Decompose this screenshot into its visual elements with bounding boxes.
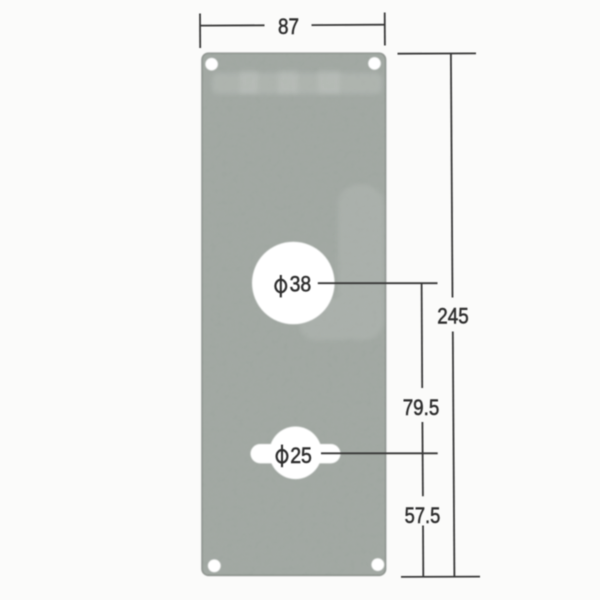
svg-text:79.5: 79.5 <box>403 395 440 420</box>
svg-text:25: 25 <box>290 443 312 468</box>
svg-text:87: 87 <box>278 14 299 39</box>
svg-text:38: 38 <box>290 272 312 297</box>
svg-text:245: 245 <box>437 304 468 329</box>
svg-text:57.5: 57.5 <box>405 503 441 528</box>
